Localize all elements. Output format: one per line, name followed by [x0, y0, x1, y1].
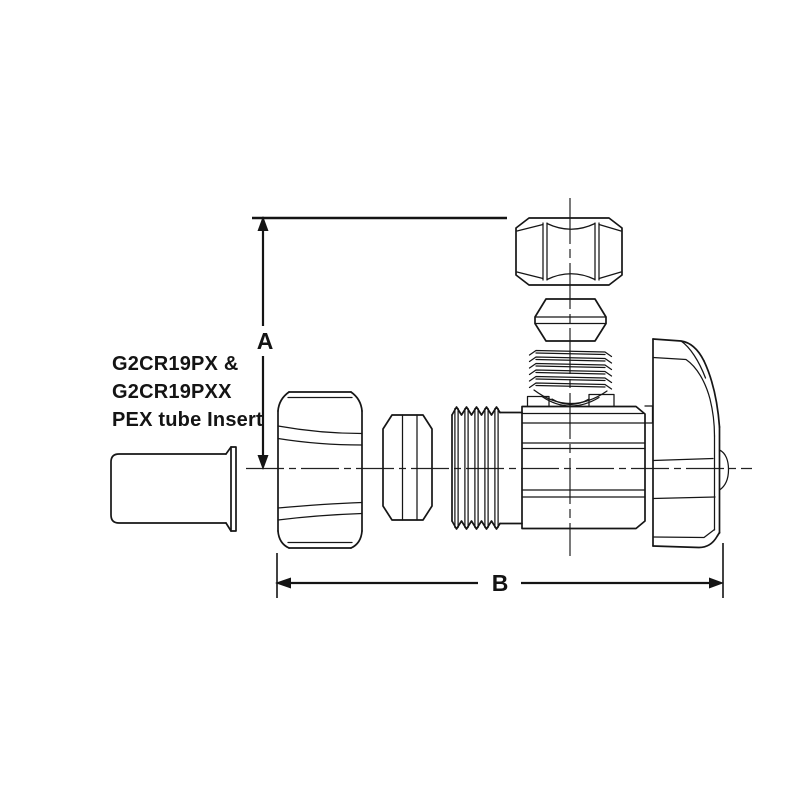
outlet-stack [516, 218, 622, 406]
dimension-a: A [252, 216, 507, 470]
diagram-canvas: G2CR19PX & G2CR19PXX PEX tube Insert A [0, 0, 800, 800]
valve-body [452, 395, 653, 530]
dimension-b-arrow-right [709, 578, 724, 589]
valve-handle [653, 339, 729, 548]
compression-nut [278, 392, 362, 548]
dimension-b-label: B [492, 570, 509, 596]
dimension-a-arrow-down [258, 455, 269, 470]
centerlines [246, 198, 752, 556]
handle-screw-boss [720, 450, 729, 490]
body-block [522, 395, 653, 529]
outlet-hex-nut [516, 218, 622, 285]
compression-sleeve [383, 415, 432, 520]
dimension-a-label: A [257, 328, 274, 354]
pex-tube-insert [111, 447, 236, 531]
dimension-b: B [275, 543, 724, 598]
valve-exploded-diagram: A B [0, 0, 800, 800]
